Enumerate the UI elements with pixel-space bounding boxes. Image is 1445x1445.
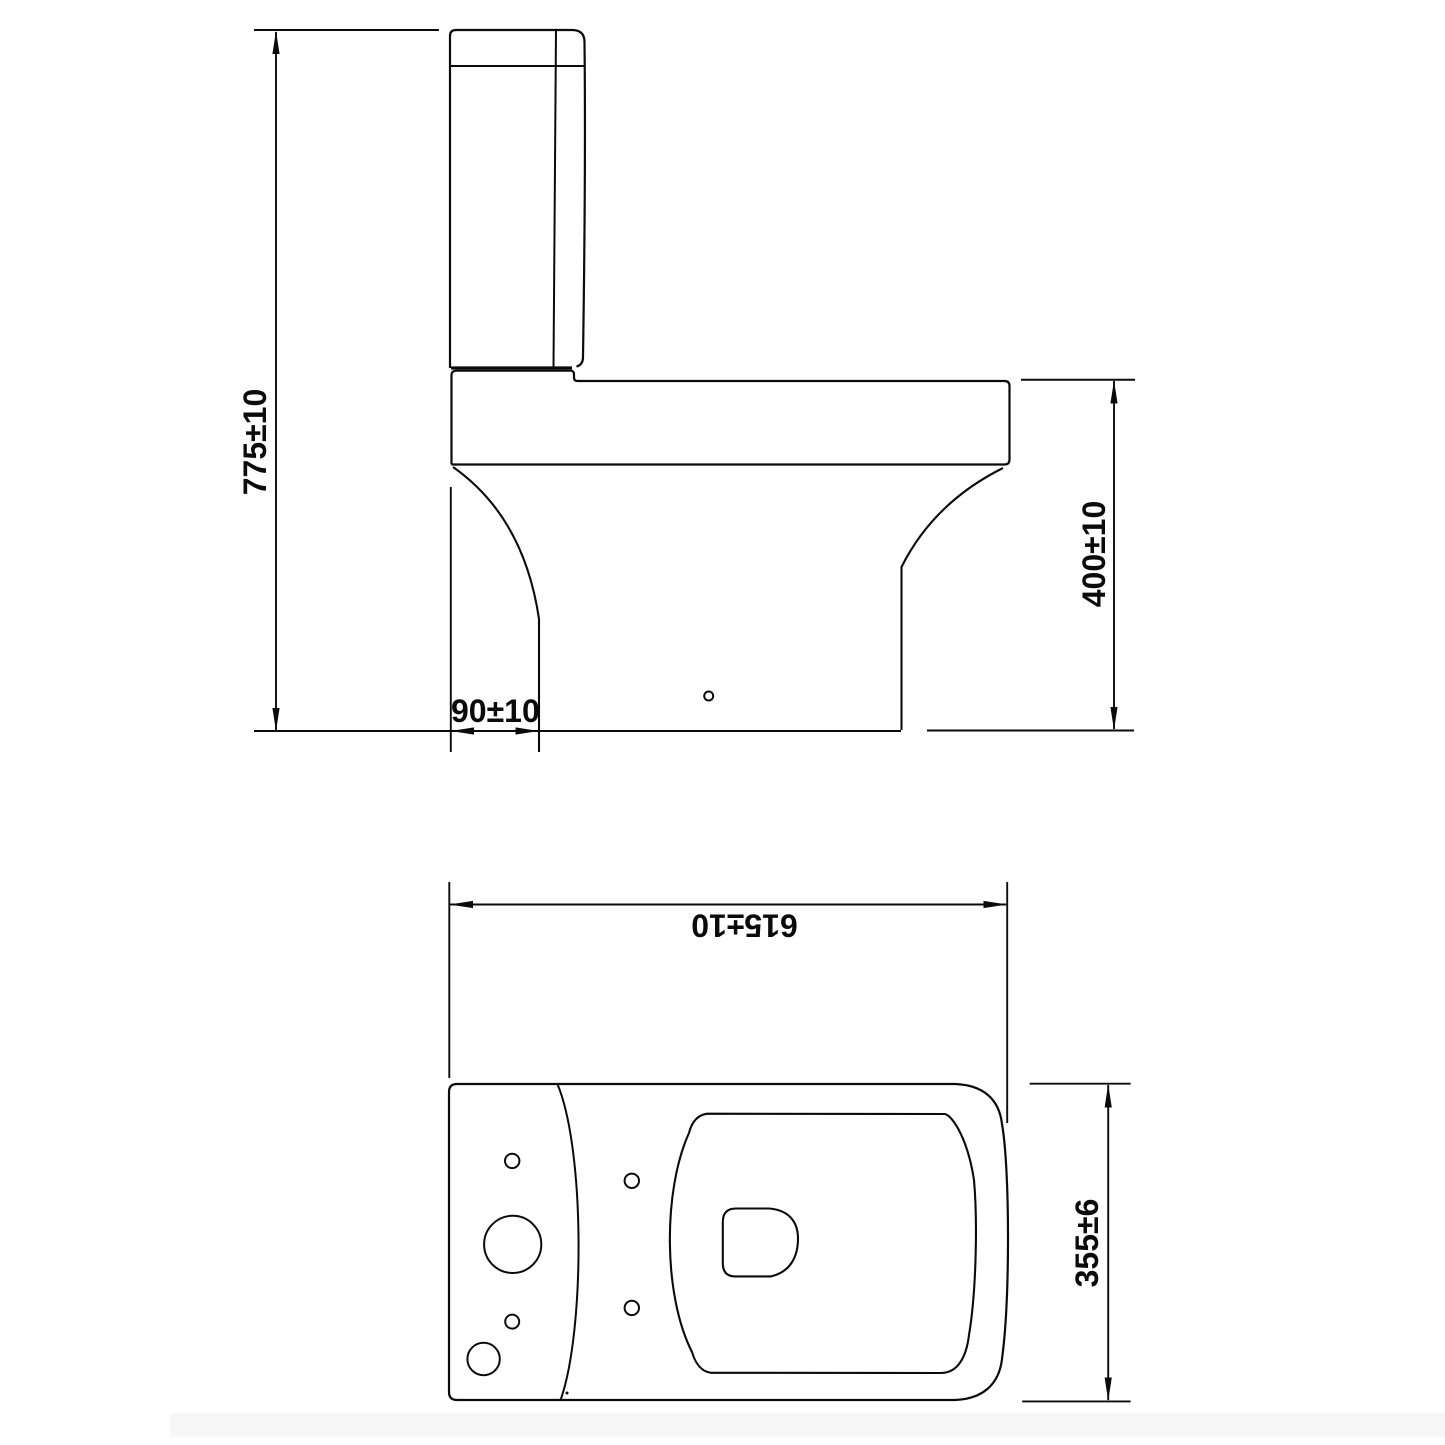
svg-text:775±10: 775±10 [237,389,273,496]
svg-text:615±10: 615±10 [691,908,798,944]
svg-text:400±10: 400±10 [1076,501,1112,608]
svg-text:90±10: 90±10 [451,693,540,729]
svg-text:355±6: 355±6 [1069,1199,1105,1288]
